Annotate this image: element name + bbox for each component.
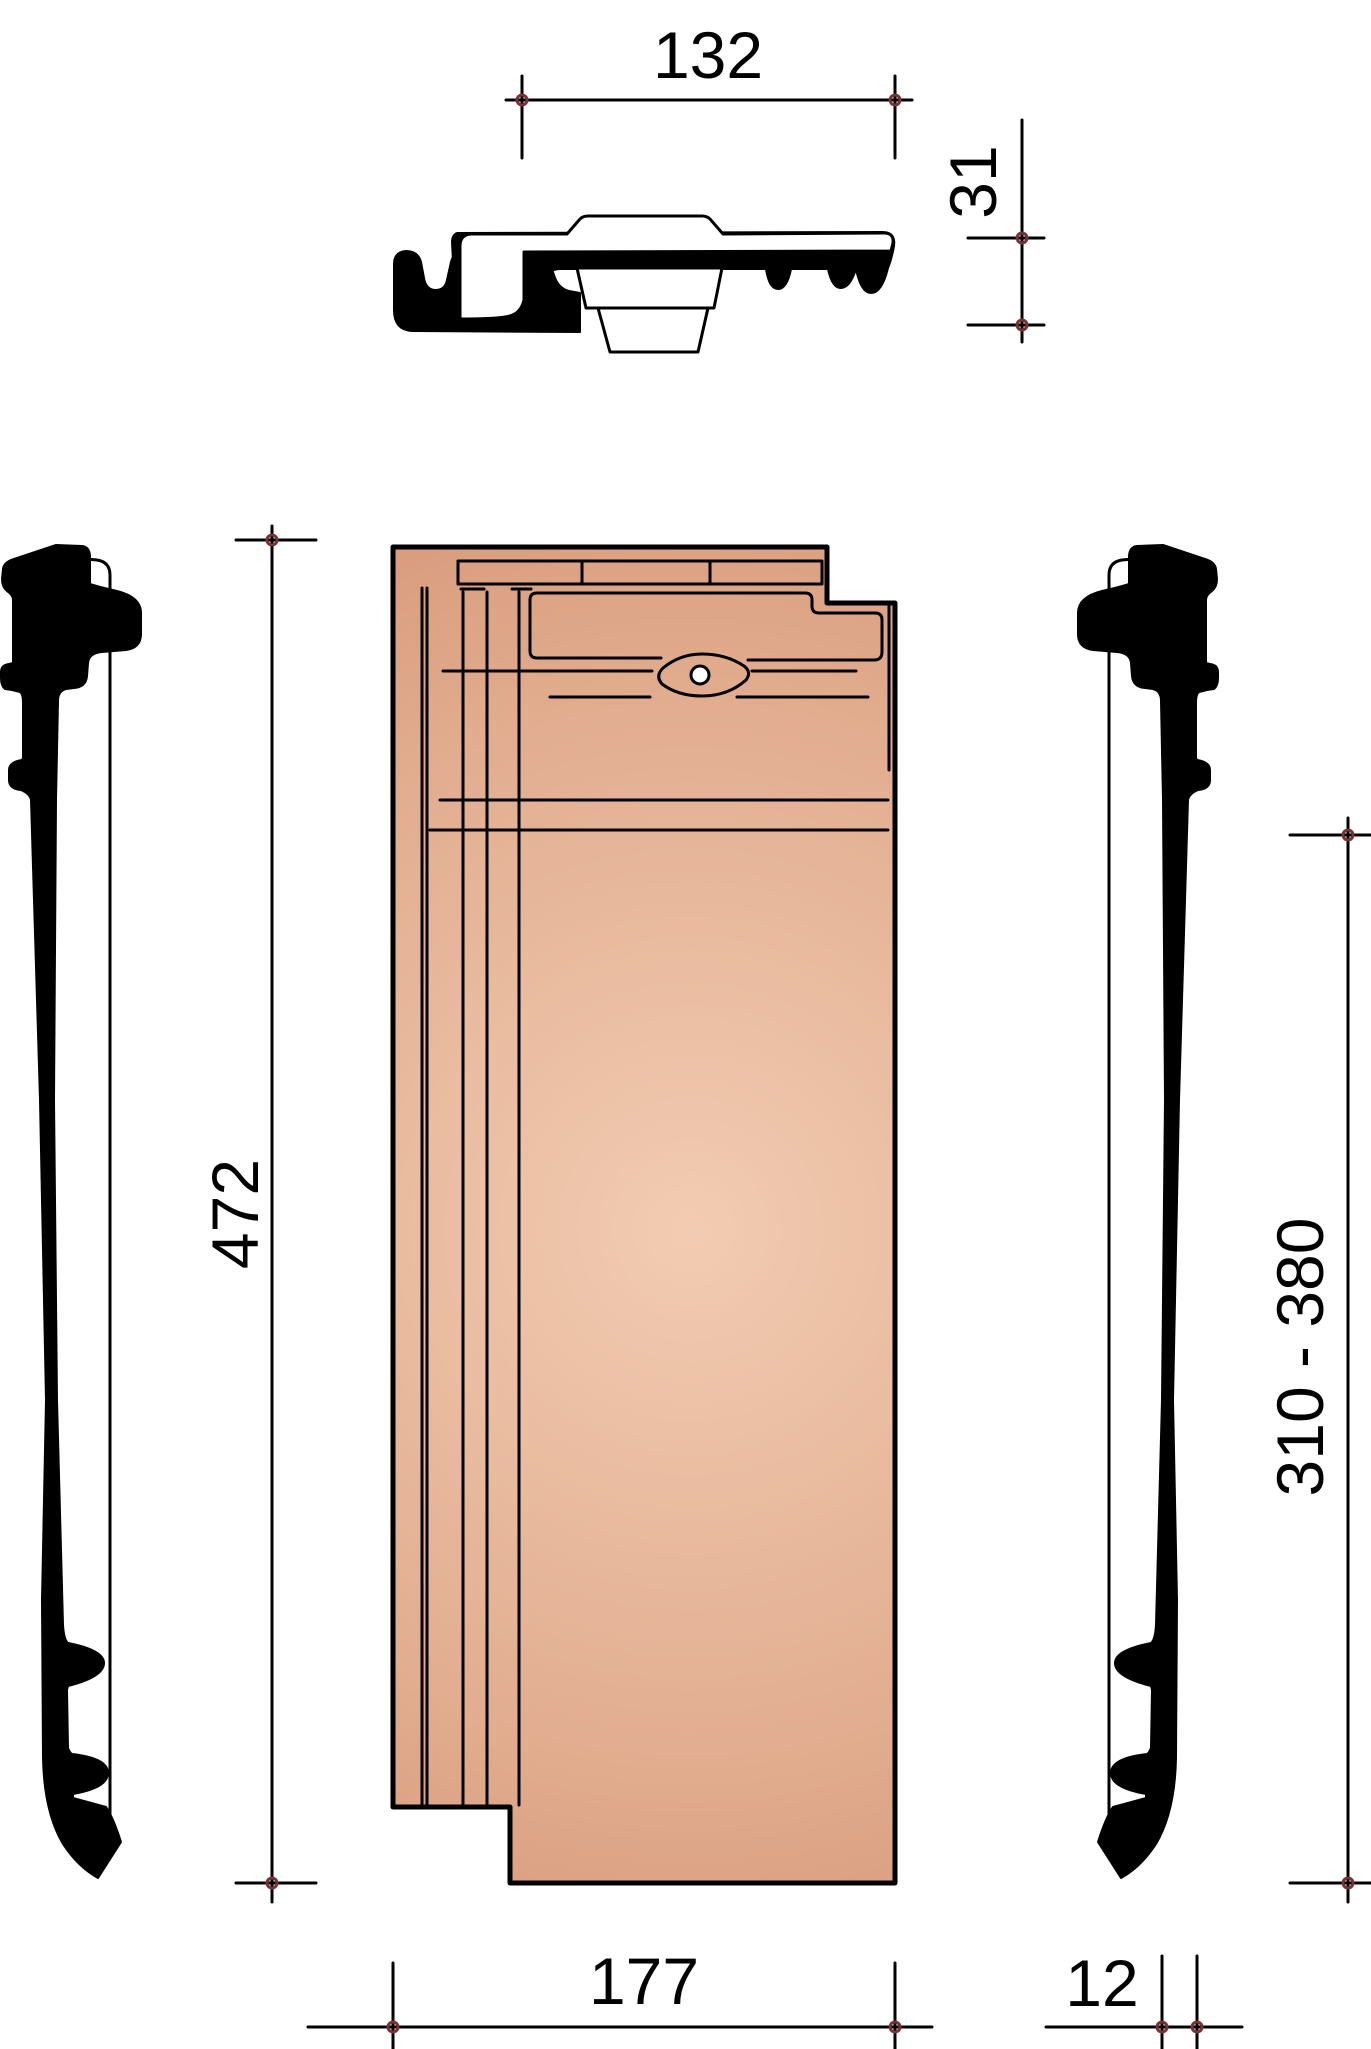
dimension-472: 472 bbox=[198, 526, 316, 1902]
dimension-31: 31 bbox=[936, 120, 1044, 342]
tile-outline bbox=[393, 547, 895, 1883]
dimension-177-label: 177 bbox=[589, 1944, 699, 2018]
dimension-132: 132 bbox=[506, 18, 912, 158]
dimension-177: 177 bbox=[308, 1944, 932, 2049]
dimension-472-label: 472 bbox=[198, 1159, 272, 1269]
roof-tile-drawing: 132 31 472 310 - 380 177 12 bbox=[0, 0, 1371, 2049]
right-profile bbox=[1078, 545, 1218, 1878]
section-view bbox=[394, 216, 894, 352]
nail-hole bbox=[691, 666, 709, 684]
dimension-31-label: 31 bbox=[936, 145, 1010, 218]
plan-view bbox=[393, 547, 895, 1883]
dimension-12: 12 bbox=[1046, 1946, 1242, 2049]
left-profile bbox=[1, 545, 141, 1878]
dimension-132-label: 132 bbox=[653, 18, 763, 92]
section-nose-upper bbox=[577, 268, 722, 308]
dimension-310-380-label: 310 - 380 bbox=[1263, 1218, 1337, 1497]
dimension-310-380: 310 - 380 bbox=[1263, 818, 1371, 1902]
section-nose-lower bbox=[598, 308, 708, 352]
technical-drawing-page: 132 31 472 310 - 380 177 12 bbox=[0, 0, 1371, 2049]
dimension-12-label: 12 bbox=[1065, 1946, 1138, 2020]
